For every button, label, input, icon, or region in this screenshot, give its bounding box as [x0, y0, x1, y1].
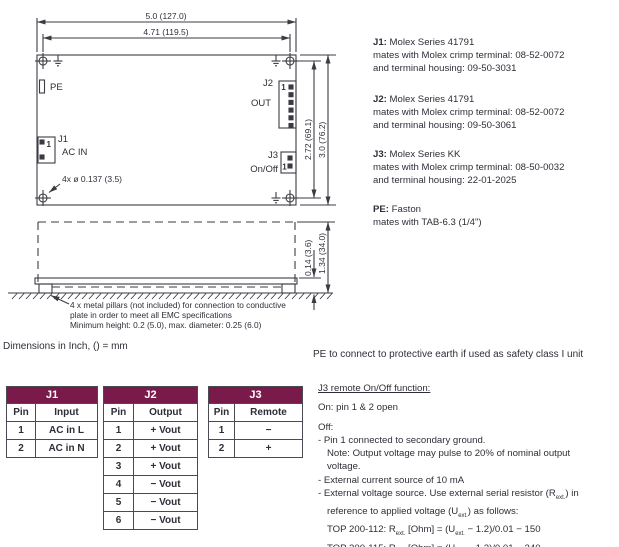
j1-label: J1 — [58, 134, 68, 145]
pin-value-cell: + Vout — [134, 458, 198, 476]
spec-j3-series: Molex Series KK — [387, 149, 461, 160]
pin-value-cell: + Vout — [134, 422, 198, 440]
pin-number-cell: 1 — [104, 422, 134, 440]
pillar-note-line2: plate in order to meet all EMC specifica… — [70, 310, 232, 320]
spec-pe-id: PE: — [373, 204, 389, 215]
pin-value-cell: + Vout — [134, 440, 198, 458]
spec-pe-series: Faston — [389, 204, 421, 215]
side-view-foot-left — [39, 284, 52, 293]
dim-standoff: 0.14 (3.6) — [303, 239, 313, 276]
units-note: Dimensions in Inch, () = mm — [3, 341, 128, 352]
table-title: J1 — [7, 387, 98, 404]
column-header: Pin — [209, 404, 235, 422]
table-row: 1AC in L — [7, 422, 98, 440]
spec-j3-line3: and terminal housing: 22-01-2025 — [373, 174, 564, 187]
pe-safety-note: PE to connect to protective earth if use… — [313, 349, 583, 360]
j2-pin1-label: 1 — [281, 83, 286, 92]
mechanical-drawing: 5.0 (127.0) 4.71 (119.5) 2.72 (69.1) 3.0… — [0, 0, 360, 352]
dim-width-inner: 4.71 (119.5) — [143, 27, 188, 37]
pe-label: PE — [50, 82, 63, 93]
pin-number-cell: 3 — [104, 458, 134, 476]
j1-pin1-label: 1 — [47, 140, 52, 149]
spec-j2-line3: and terminal housing: 09-50-3061 — [373, 119, 564, 132]
pin-value-cell: − — [235, 422, 303, 440]
pillar-note-line1: 4 x metal pillars (not included) for con… — [70, 300, 286, 310]
table-row: 2AC in N — [7, 440, 98, 458]
table-row: 1+ Vout — [104, 422, 198, 440]
pin-number-cell: 4 — [104, 476, 134, 494]
remote-bullet-3-cont: reference to applied voltage (Uext.) as … — [318, 505, 616, 523]
pin-value-cell: AC in N — [36, 440, 98, 458]
spec-j1-line3: and terminal housing: 09-50-3031 — [373, 62, 564, 75]
spec-j1-line2: mates with Molex crimp terminal: 08-52-0… — [373, 49, 564, 62]
remote-bullet-1-note: Note: Output voltage may pulse to 20% of… — [318, 447, 616, 460]
pin-value-cell: − Vout — [134, 512, 198, 530]
pin-value-cell: − Vout — [134, 476, 198, 494]
spec-j2: J2: Molex Series 41791 mates with Molex … — [373, 93, 564, 132]
j3-label: J3 — [268, 150, 278, 161]
j2-label: J2 — [263, 78, 273, 89]
table-row: 2+ — [209, 440, 303, 458]
column-header: Output — [134, 404, 198, 422]
earth-ground-icon — [272, 55, 281, 66]
pin-number-cell: 5 — [104, 494, 134, 512]
side-view-envelope — [38, 222, 295, 287]
dim-height-inner: 2.72 (69.1) — [303, 119, 313, 160]
remote-bullet-1: - Pin 1 connected to secondary ground. — [318, 434, 616, 447]
table-row: 3+ Vout — [104, 458, 198, 476]
spec-j2-id: J2: — [373, 94, 387, 105]
pe-tab — [40, 80, 45, 93]
j2-sublabel: OUT — [251, 98, 271, 109]
column-header: Remote — [235, 404, 303, 422]
remote-formula-112: TOP 200-112: Rext. [Ohm] = (Uext. − 1.2)… — [318, 523, 616, 541]
dim-total-height: 1.34 (34.0) — [317, 233, 327, 274]
table-title: J2 — [104, 387, 198, 404]
spec-j1: J1: Molex Series 41791 mates with Molex … — [373, 36, 564, 75]
dim-height-outer: 3.0 (76.2) — [317, 121, 327, 158]
pin-number-cell: 2 — [104, 440, 134, 458]
side-view-board — [35, 278, 297, 284]
remote-bullet-1-note2: voltage. — [318, 460, 616, 473]
j3-sublabel: On/Off — [250, 164, 278, 175]
spec-j3: J3: Molex Series KK mates with Molex cri… — [373, 148, 564, 187]
remote-formula-115: TOP 200-115: Rext. [Ohm] = (Uext. − 1.2)… — [318, 542, 616, 547]
remote-title: J3 remote On/Off function: — [318, 382, 616, 395]
table-row: 6− Vout — [104, 512, 198, 530]
column-header: Pin — [7, 404, 36, 422]
column-header: Pin — [104, 404, 134, 422]
spec-pe-line2: mates with TAB-6.3 (1/4") — [373, 216, 482, 229]
table-row: 5− Vout — [104, 494, 198, 512]
spec-j1-series: Molex Series 41791 — [387, 37, 474, 48]
table-row: 4− Vout — [104, 476, 198, 494]
table-title: J3 — [209, 387, 303, 404]
pin-number-cell: 1 — [7, 422, 36, 440]
spec-j3-line2: mates with Molex crimp terminal: 08-50-0… — [373, 161, 564, 174]
spec-pe: PE: Faston mates with TAB-6.3 (1/4") — [373, 203, 482, 229]
pillar-note-line3: Minimum height: 0.2 (5.0), max. diameter… — [70, 320, 262, 330]
pin-value-cell: − Vout — [134, 494, 198, 512]
datasheet-page: 5.0 (127.0) 4.71 (119.5) 2.72 (69.1) 3.0… — [0, 0, 619, 547]
table-row: 1− — [209, 422, 303, 440]
earth-ground-icon — [272, 192, 281, 203]
earth-ground-icon — [54, 55, 63, 66]
pin-number-cell: 2 — [7, 440, 36, 458]
column-header: Input — [36, 404, 98, 422]
j3-pin-table: J3PinRemote1−2+ — [208, 386, 303, 458]
pin-number-cell: 6 — [104, 512, 134, 530]
table-row: 2+ Vout — [104, 440, 198, 458]
spec-j3-id: J3: — [373, 149, 387, 160]
j1-sublabel: AC IN — [62, 147, 87, 158]
remote-off-line: Off: — [318, 421, 616, 434]
pin-number-cell: 2 — [209, 440, 235, 458]
spec-j2-series: Molex Series 41791 — [387, 94, 474, 105]
spec-j2-line2: mates with Molex crimp terminal: 08-52-0… — [373, 106, 564, 119]
remote-function-section: J3 remote On/Off function: On: pin 1 & 2… — [318, 382, 616, 547]
side-view-foot-right — [282, 284, 295, 293]
remote-bullet-2: - External current source of 10 mA — [318, 474, 616, 487]
remote-on-line: On: pin 1 & 2 open — [318, 401, 616, 414]
ground-hatching — [12, 294, 332, 300]
pin-value-cell: + — [235, 440, 303, 458]
spec-j1-id: J1: — [373, 37, 387, 48]
pin-number-cell: 1 — [209, 422, 235, 440]
remote-bullet-3: - External voltage source. Use external … — [318, 487, 616, 505]
j1-pin-table: J1PinInput1AC in L2AC in N — [6, 386, 98, 458]
pin-value-cell: AC in L — [36, 422, 98, 440]
dim-width-outer: 5.0 (127.0) — [145, 11, 186, 21]
j3-pin1-label: 1 — [282, 163, 287, 172]
j2-pin-table: J2PinOutput1+ Vout2+ Vout3+ Vout4− Vout5… — [103, 386, 198, 530]
hole-diameter-note: 4x ø 0.137 (3.5) — [62, 174, 122, 184]
